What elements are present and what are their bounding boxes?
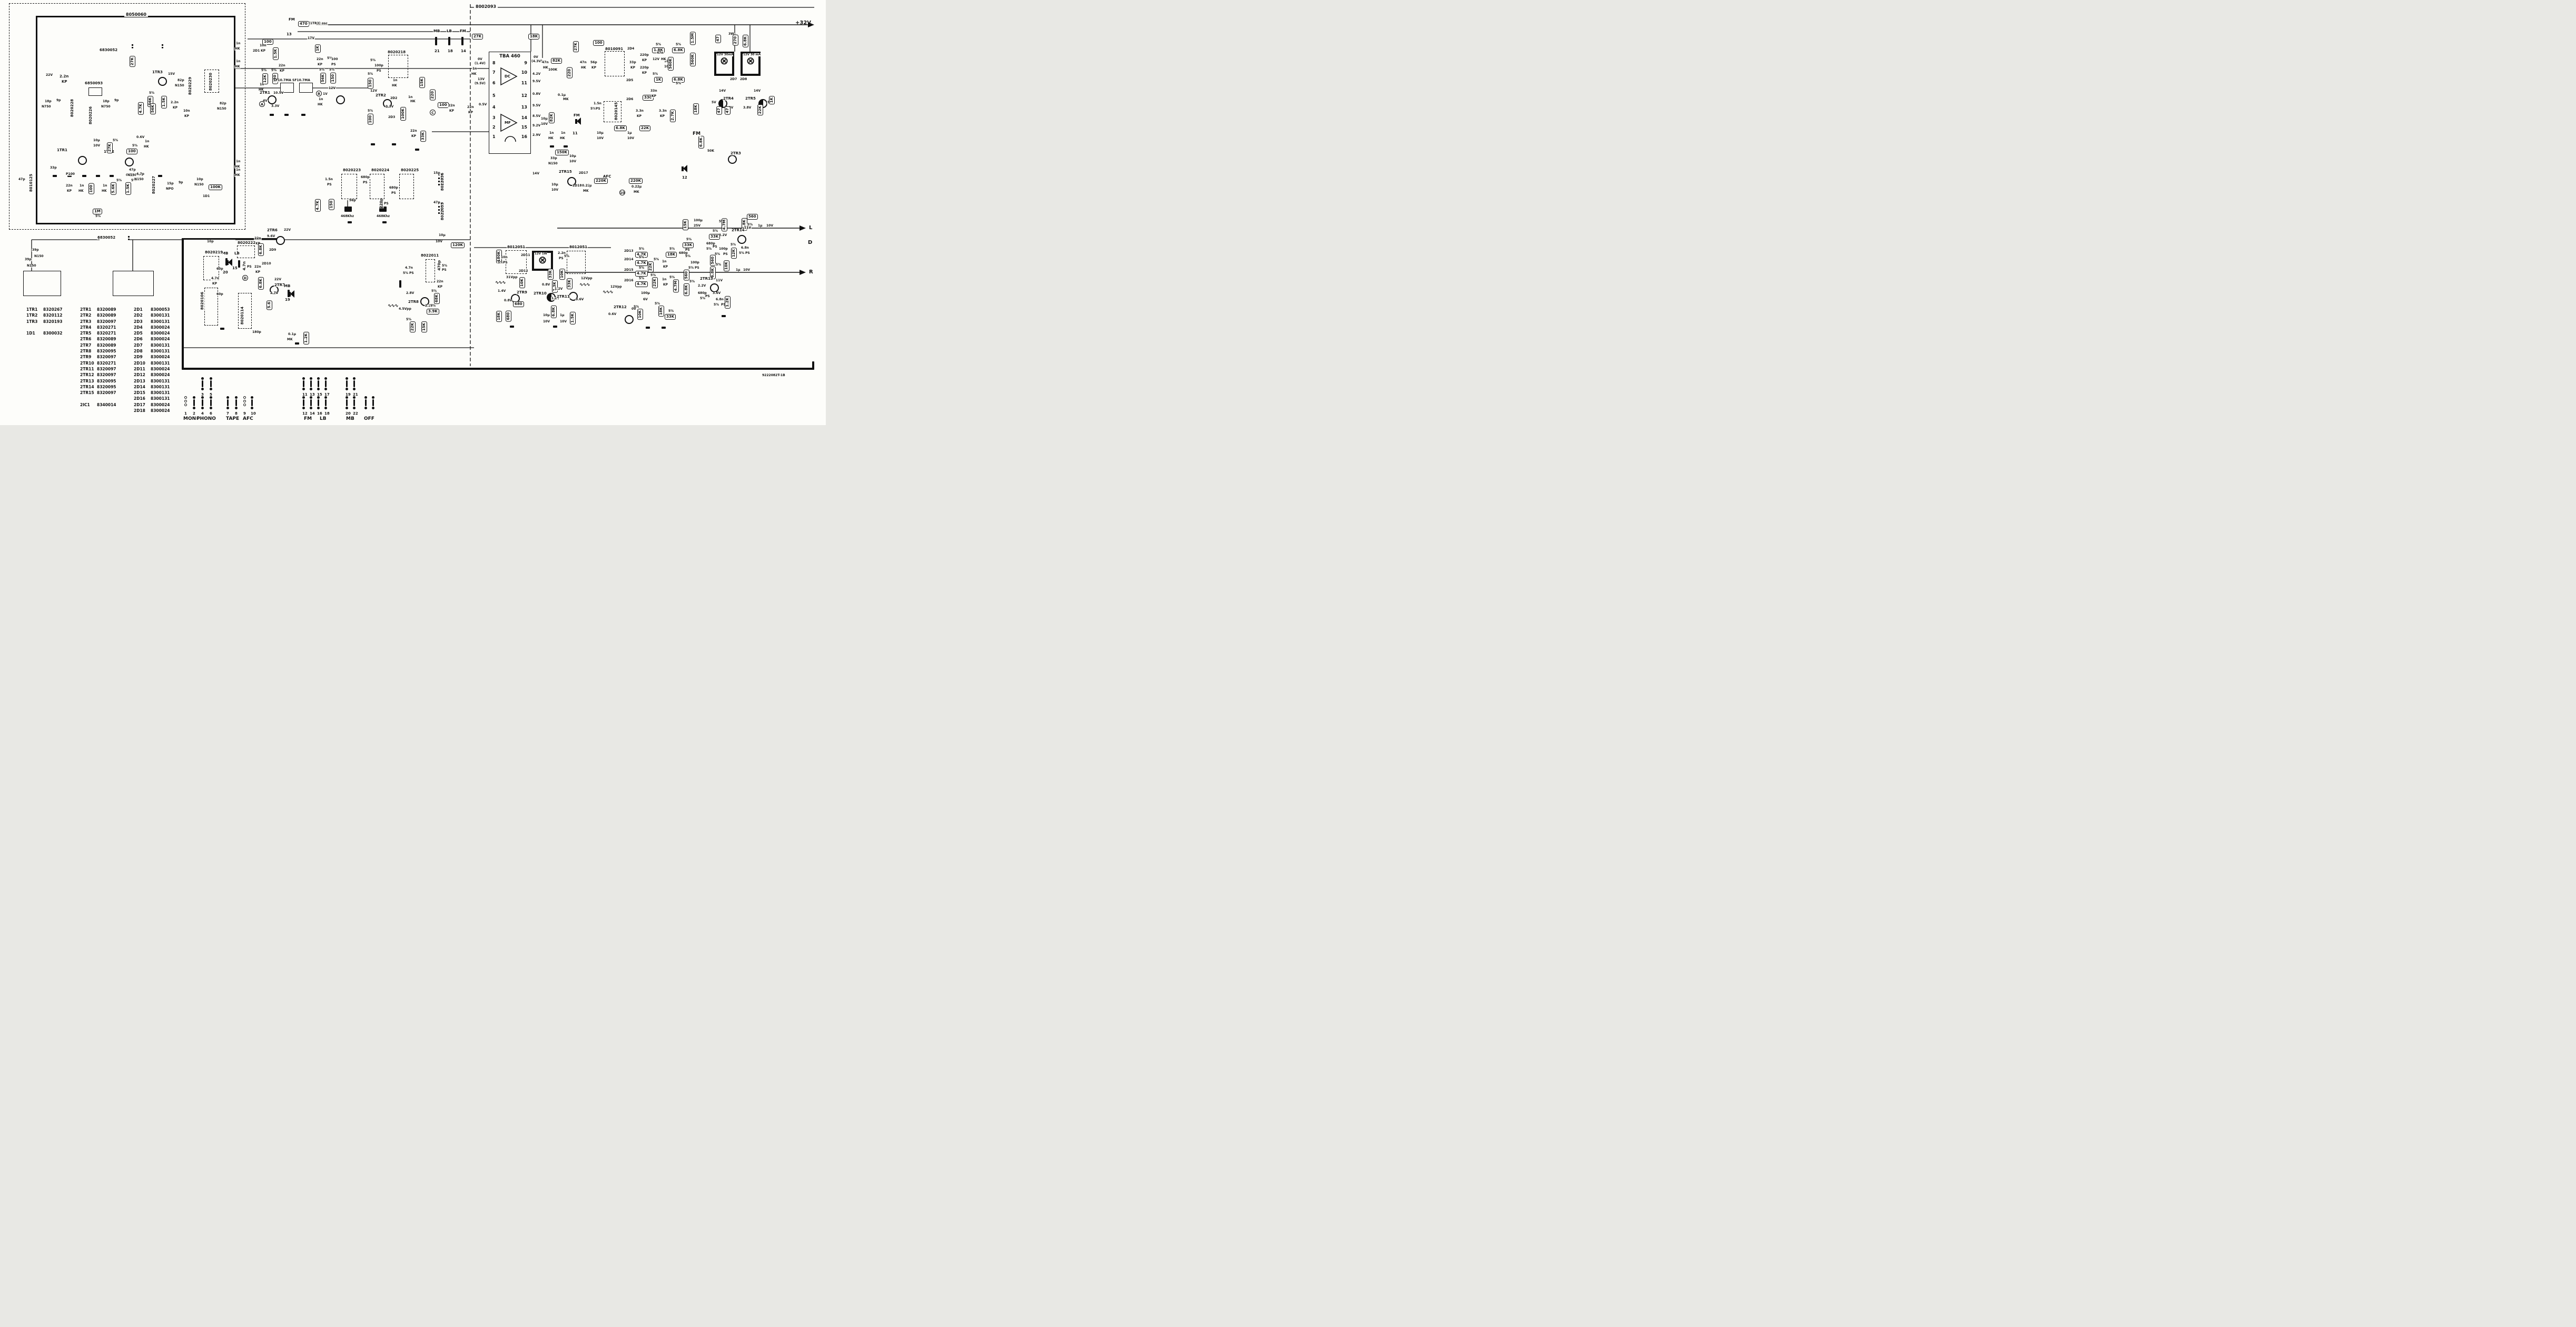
- component-label: 1n: [560, 132, 566, 135]
- module-box: [399, 174, 414, 199]
- part-ref: 2TR14: [80, 384, 97, 390]
- component-label: 18: [447, 50, 453, 53]
- component-label: 5%: [638, 248, 645, 251]
- component-label: 680: [506, 311, 511, 322]
- part-number: 8300024: [151, 366, 177, 372]
- component-label: 5%: [132, 144, 138, 148]
- component-label: 11: [572, 132, 578, 135]
- component-label: 68K: [434, 293, 440, 304]
- switch-contact: [184, 396, 187, 407]
- parts-list-row: 2TR58320271: [80, 330, 123, 336]
- component-label: 5%: [650, 274, 656, 277]
- component-label: 5%: [406, 318, 412, 321]
- part-number: 8320089: [97, 307, 123, 312]
- component-label: N750: [41, 105, 52, 109]
- component-label: 15K: [419, 77, 425, 88]
- ic-amp-dc: DC: [504, 75, 511, 78]
- module-box: [812, 361, 814, 369]
- part-ref: 2TR4: [80, 325, 97, 330]
- part-ref: 2D17: [134, 402, 151, 408]
- parts-list-row: 2D38300131: [134, 319, 177, 325]
- parts-list-row: 1TR38320193: [26, 319, 70, 325]
- switch-contact: [372, 396, 374, 409]
- component-label: 10V: [627, 137, 635, 140]
- part-ref: 2D7: [134, 342, 151, 348]
- component-label: 15K: [683, 219, 688, 230]
- parts-list-row: 2D18300053: [134, 307, 177, 312]
- part-ref: 2D18: [134, 408, 151, 414]
- switch-group-label: PHONO: [196, 417, 216, 421]
- parts-list-row: 2TR28320089: [80, 312, 123, 318]
- component-label: 22V: [45, 74, 53, 77]
- transistor-symbol: [125, 158, 134, 166]
- component-label: 47n: [579, 61, 587, 64]
- part-ref: [26, 325, 43, 330]
- component-label: PS: [441, 269, 447, 272]
- part-ref: 1TR2: [26, 312, 43, 318]
- component-label: PS: [723, 253, 728, 256]
- component-label: 8020218: [387, 51, 406, 54]
- parts-list-row: 2D88300131: [134, 348, 177, 354]
- component-label: 1µ: [735, 269, 741, 272]
- switch-contact: [310, 377, 312, 390]
- component-label: 2D1: [252, 50, 260, 53]
- module-box: [284, 114, 289, 116]
- component-label: 2D17: [578, 172, 589, 175]
- component-label: 2TR12: [613, 306, 627, 309]
- switch-contact: [243, 396, 246, 407]
- part-number: 8320271: [97, 330, 123, 336]
- component-label: FM: [692, 132, 701, 136]
- component-label: 5%: [652, 73, 658, 76]
- component-label: 0V: [477, 58, 483, 61]
- component-label: 10V: [766, 224, 774, 228]
- component-label: 4.2V: [532, 73, 541, 76]
- part-ref: 2D11: [134, 366, 151, 372]
- component-label: KP: [636, 115, 642, 118]
- parts-list-row: 2D78300131: [134, 342, 177, 348]
- component-label: 10µ: [596, 132, 604, 135]
- module-box: [564, 145, 568, 148]
- component-label: 2.7K: [670, 110, 676, 122]
- switch-contact-number: 2: [192, 412, 196, 416]
- component-label: LB: [446, 30, 452, 33]
- part-number: 8320095: [97, 384, 123, 390]
- component-label: 9p: [56, 99, 61, 102]
- component-label: 0V: [533, 56, 539, 59]
- component-label: 10n: [183, 110, 191, 113]
- component-label: 5%: [370, 59, 376, 62]
- component-label: N150: [134, 178, 144, 181]
- component-label: 680p: [389, 186, 399, 190]
- component-label: 33K: [567, 278, 573, 289]
- part-ref: 2D9: [134, 354, 151, 360]
- module-box: [448, 37, 450, 45]
- component-label: 22K: [639, 125, 650, 131]
- component-label: 6.8K: [551, 306, 557, 318]
- parts-list: 1TR183202671TR283201121TR383201931D18300…: [26, 307, 177, 414]
- component-label: 1µ: [559, 314, 565, 317]
- parts-list-row: 2D188300024: [134, 408, 177, 414]
- component-label: 8020222: [237, 241, 256, 245]
- parts-list-row: 2D98300024: [134, 354, 177, 360]
- component-label: 39p: [24, 258, 32, 261]
- component-label: 1.5K: [273, 47, 279, 60]
- output-l-label: L: [809, 225, 812, 231]
- part-ref: 2D1: [134, 307, 151, 312]
- component-label: N150: [194, 183, 204, 186]
- module-box: [550, 145, 554, 148]
- component-label: 4.7M: [673, 279, 679, 292]
- module-box: [646, 327, 650, 329]
- parts-list-row: [26, 325, 70, 330]
- component-label: HK: [660, 58, 667, 61]
- component-label: 3.9K: [427, 309, 439, 314]
- part-ref: 1D1: [26, 330, 43, 336]
- module-box: [605, 51, 625, 76]
- component-label: 2TR3: [730, 152, 742, 155]
- component-label: 8.5V: [532, 115, 541, 118]
- component-label: 2D9: [269, 249, 277, 252]
- component-label: 4.7p: [136, 173, 145, 176]
- component-label: 6.8K: [258, 277, 264, 290]
- component-label: MK: [562, 98, 569, 101]
- module-box: [348, 221, 352, 223]
- component-label: 0.22µ: [631, 185, 642, 189]
- ic-amp-symbols: [489, 52, 530, 153]
- component-label: 14V: [532, 172, 540, 175]
- parts-list-row: 2IC18340014: [80, 402, 123, 408]
- component-label: 5%: [713, 303, 719, 307]
- component-label: 3.8V: [743, 106, 752, 110]
- switch-contact-number: 20: [345, 412, 351, 416]
- part-ref: 2D8: [134, 348, 151, 354]
- component-label: HK: [317, 103, 323, 106]
- component-label: 100K: [548, 68, 558, 72]
- part-ref: 2TR7: [80, 342, 97, 348]
- component-label: 18p: [44, 100, 52, 103]
- module-box: [238, 260, 240, 268]
- part-number: 8320097: [97, 319, 123, 325]
- module-box: [182, 238, 282, 240]
- switch-contact: [226, 396, 229, 409]
- component-label: 1TR3: [152, 71, 163, 74]
- component-label: 220K: [594, 178, 608, 184]
- component-label: 13: [286, 33, 292, 36]
- component-label: 1n: [102, 184, 107, 188]
- component-label: NPO: [165, 188, 174, 191]
- component-label: 560K: [668, 57, 674, 71]
- component-label: 4.7M: [722, 218, 727, 231]
- component-label: 10V: [93, 144, 101, 148]
- part-number: [97, 396, 123, 401]
- component-label: 1n: [662, 278, 667, 281]
- component-label: KP: [659, 115, 665, 118]
- component-label: 5%: [685, 255, 691, 258]
- component-label: 5%: [112, 139, 119, 142]
- component-label: N750: [101, 105, 111, 109]
- component-label: 0.8V: [532, 93, 541, 96]
- component-label: 220p: [639, 66, 649, 70]
- part-number: 8300024: [151, 325, 177, 330]
- component-label: 1n: [318, 98, 323, 101]
- component-label: 2D4: [627, 47, 635, 51]
- component-label: 10V: [743, 269, 751, 272]
- component-label: 5%: [689, 280, 695, 283]
- component-label: 10n: [500, 256, 508, 259]
- component-label: 1n: [235, 169, 241, 172]
- component-label: 2D10: [261, 262, 272, 266]
- part-number: 8320097: [97, 372, 123, 378]
- part-ref: 2TR9: [80, 354, 97, 360]
- component-label: 12Vpp: [610, 286, 623, 289]
- module-box: [553, 326, 557, 328]
- component-label: 22n: [254, 266, 262, 269]
- component-label: 0.6V: [136, 136, 145, 139]
- component-label: 5%: [329, 68, 335, 72]
- component-label: 9222082T-1B: [762, 374, 786, 377]
- component-label: 47p: [18, 178, 26, 181]
- component-label: 2D5: [626, 79, 634, 82]
- component-label: 1.5M: [690, 32, 696, 45]
- component-label: 5%: [367, 110, 373, 113]
- component-label: HK: [101, 190, 107, 193]
- component-label: 2TR9: [516, 291, 528, 294]
- component-label: 33K: [665, 314, 676, 320]
- component-label: 10µ: [569, 155, 577, 158]
- switch-contact: [210, 396, 212, 409]
- component-label: 47n: [656, 52, 664, 55]
- module-box: [82, 175, 86, 177]
- component-label: 2.2V: [697, 284, 706, 288]
- component-label: 1.2V: [554, 288, 563, 291]
- part-number: 8300032: [43, 330, 70, 336]
- component-label: KP: [591, 66, 597, 70]
- component-label: 10K: [559, 269, 565, 280]
- component-label: PS: [246, 266, 252, 269]
- component-label: 4.7n: [211, 277, 220, 280]
- board-number-main: 8002093: [474, 5, 498, 9]
- component-label: 5%: [738, 252, 745, 255]
- component-label: 22n: [410, 130, 418, 133]
- switch-contact-number: 4: [201, 412, 204, 416]
- switch-contact: [346, 396, 348, 409]
- parts-list-row: 2D158300131: [134, 390, 177, 396]
- component-label: 1.5K: [570, 312, 576, 325]
- component-label: 56K: [150, 103, 156, 114]
- part-ref: 2D15: [134, 390, 151, 396]
- transistor-symbol: [625, 315, 634, 324]
- component-label: 22n: [254, 237, 262, 240]
- component-label: 5%: [149, 92, 155, 95]
- component-label: 2TR14: [731, 229, 745, 232]
- module-box: [415, 149, 419, 151]
- component-label: KP: [651, 95, 657, 98]
- component-label: 2TR10: [533, 292, 547, 296]
- lamp-rating: 12V 1W: [535, 252, 547, 255]
- component-label: 10µ: [93, 139, 101, 142]
- component-label: 100: [331, 58, 339, 61]
- module-box: [295, 342, 299, 345]
- component-label: 100p: [374, 64, 384, 67]
- component-label: KP: [411, 135, 417, 138]
- component-label: 1µ: [627, 132, 633, 135]
- component-label: 220: [430, 90, 436, 101]
- component-label: 31Vpp: [506, 276, 518, 279]
- parts-list-row: 2D58300024: [134, 330, 177, 336]
- component-label: 33p: [50, 166, 57, 170]
- component-label: KP: [449, 110, 455, 113]
- component-label: 8020226: [88, 106, 93, 124]
- part-ref: 2D10: [134, 360, 151, 366]
- component-label: 468Khz: [340, 215, 354, 218]
- component-label: 10V: [435, 240, 443, 243]
- component-label: 8020225: [400, 169, 419, 172]
- component-label: 5%: [638, 256, 645, 259]
- module-box: [722, 315, 726, 317]
- component-label: 1n: [408, 96, 413, 99]
- component-label: 1n: [235, 42, 241, 45]
- component-label: 12K: [731, 248, 737, 259]
- component-label: 18p: [102, 100, 110, 103]
- component-label: 5%: [686, 238, 692, 241]
- part-ref: 2D2: [134, 312, 151, 318]
- component-label: N150: [548, 162, 558, 165]
- part-number: [43, 325, 70, 330]
- part-number: 8300131: [151, 342, 177, 348]
- component-label: 1.5n: [324, 178, 333, 181]
- part-number: 8300131: [151, 319, 177, 325]
- component-label: 0.6V: [608, 313, 617, 316]
- part-ref: 2TR3: [80, 319, 97, 325]
- part-number: 8320271: [97, 360, 123, 366]
- component-label: 5%: [271, 69, 277, 72]
- component-label: 10p: [206, 240, 214, 243]
- component-label: 120K: [451, 242, 465, 248]
- component-label: 33K: [709, 234, 720, 240]
- component-label: 3.3n: [658, 110, 667, 113]
- component-label: 6.8K: [614, 125, 627, 131]
- parts-list-row: 2D118300024: [134, 366, 177, 372]
- ic-tba460: TBA 460 DC MF 89710611512413314215116: [489, 52, 531, 154]
- component-label: 82K: [551, 58, 562, 64]
- module-box: [399, 280, 401, 288]
- component-label: 5%: [319, 68, 325, 72]
- component-label: 5%: [675, 82, 682, 85]
- component-label: 100µ: [693, 219, 703, 222]
- switch-contact: [324, 396, 327, 409]
- component-label: 8020223: [342, 169, 361, 172]
- parts-list-row: 2TR38320097: [80, 319, 123, 325]
- component-label: 5%: [564, 255, 570, 258]
- component-label: 5%: [668, 310, 674, 313]
- parts-list-row: 2D138300131: [134, 378, 177, 384]
- module-box: [341, 174, 357, 199]
- component-label: 12V: [328, 87, 336, 90]
- parts-list-row: 2D178300024: [134, 402, 177, 408]
- part-number: 8300131: [151, 396, 177, 401]
- component-label: N150: [34, 255, 44, 258]
- component-label: 1.2K: [725, 296, 731, 309]
- module-box: [220, 328, 224, 330]
- component-label: 8020219: [204, 251, 223, 254]
- component-label: 0.8V: [541, 283, 550, 287]
- component-label: (1TR3) osc: [308, 22, 328, 25]
- component-label: 5%: [638, 267, 645, 270]
- component-label: 2TR1: [259, 91, 271, 95]
- component-label: 4.7n: [404, 267, 413, 270]
- parts-list-row: 2TR118320097: [80, 366, 123, 372]
- component-label: MK: [633, 191, 640, 194]
- component-label: 2D11: [520, 254, 531, 257]
- component-label: 0.5V: [478, 103, 487, 106]
- component-label: 5%: [675, 43, 682, 46]
- component-label: 39p: [32, 249, 40, 252]
- component-label: 33K: [683, 242, 694, 248]
- module-box: [110, 175, 114, 177]
- component-label: 27K: [573, 41, 579, 52]
- component-label: PS: [745, 252, 751, 255]
- component-label: 2TR15: [558, 170, 573, 174]
- component-label: HK: [78, 190, 84, 193]
- component-label: 2D16: [624, 279, 634, 282]
- component-label: 8020114: [240, 307, 245, 325]
- component-label: HK: [471, 73, 477, 76]
- switch-contact: [317, 377, 320, 390]
- component-label: PS: [331, 63, 337, 66]
- part-number: 8320112: [43, 312, 70, 318]
- component-label: PS: [362, 181, 368, 184]
- parts-list-row: 2D68300024: [134, 336, 177, 342]
- component-label: 10µ: [540, 117, 548, 121]
- parts-list-row: 2TR128320097: [80, 372, 123, 378]
- module-box: [158, 175, 162, 177]
- component-label: 47p: [129, 169, 136, 172]
- parts-list-row: 2TR158320097: [80, 390, 123, 396]
- component-label: 8010091: [605, 47, 624, 51]
- transistor-symbol: [158, 77, 167, 86]
- component-label: 2D12: [518, 270, 529, 273]
- component-label: 100: [126, 149, 137, 154]
- component-label: 27K: [107, 142, 113, 153]
- part-ref: 2TR10: [80, 360, 97, 366]
- component-label: 220K: [629, 178, 643, 184]
- switch-contact-number: 22: [352, 412, 359, 416]
- module-box: [371, 143, 375, 145]
- component-label: 5.6K: [111, 182, 116, 195]
- parts-list-row: 2TR88320095: [80, 348, 123, 354]
- part-ref: 2D16: [134, 396, 151, 401]
- part-ref: 1TR1: [26, 307, 43, 312]
- component-label: PS: [502, 261, 508, 264]
- switch-contact-number: 6: [209, 412, 213, 416]
- component-label: 1n: [472, 67, 477, 71]
- component-label: HK: [580, 66, 587, 70]
- component-label: 3.3V: [271, 105, 280, 108]
- component-label: 100p: [718, 248, 728, 251]
- component-label: 5%: [655, 43, 662, 46]
- component-label: 33K: [420, 131, 426, 142]
- module-box: [567, 251, 586, 274]
- module-box: [426, 259, 435, 282]
- switch-contact: [210, 377, 212, 390]
- parts-list-row: 2TR78320089: [80, 342, 123, 348]
- component-label: 11V: [715, 279, 723, 282]
- test-point: C: [430, 110, 436, 115]
- component-label: KP: [630, 66, 636, 70]
- component-label: 27K: [130, 56, 135, 67]
- module-box: [435, 37, 437, 45]
